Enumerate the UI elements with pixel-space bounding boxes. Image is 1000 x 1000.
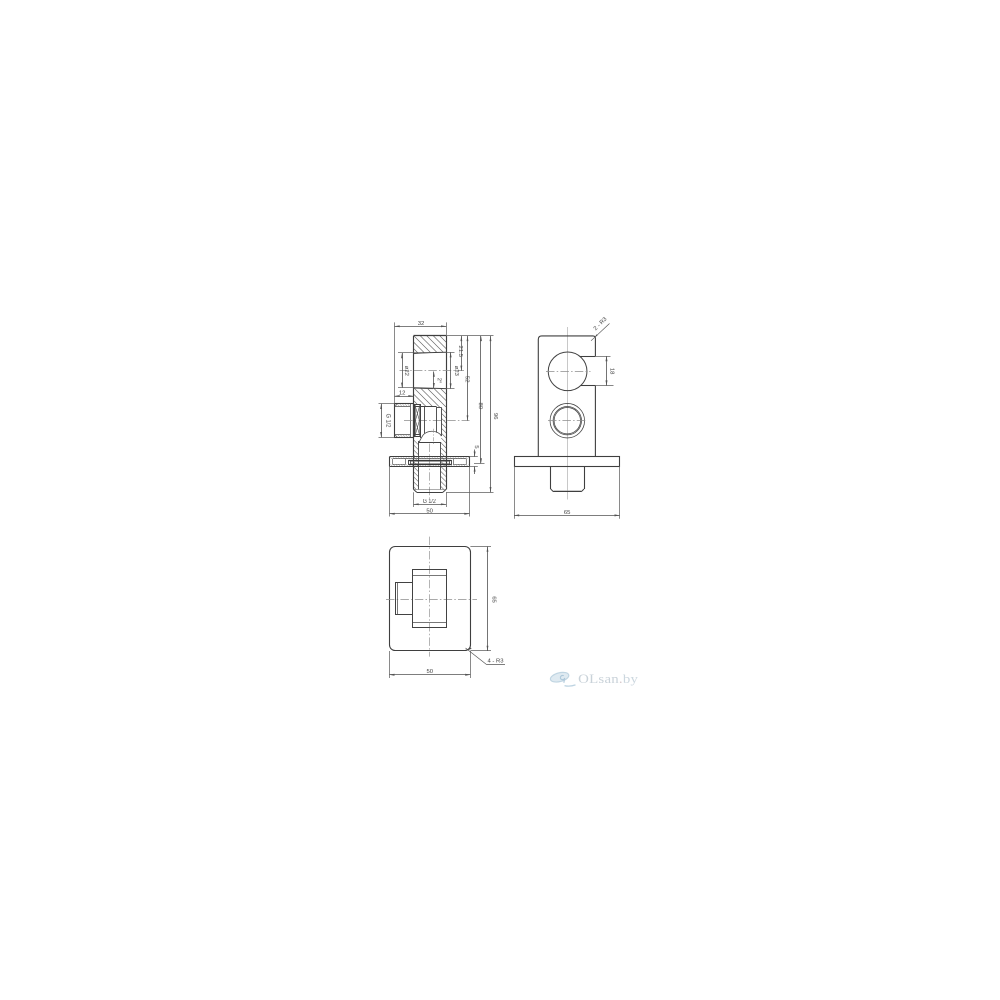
svg-text:80: 80: [477, 403, 483, 410]
svg-text:18: 18: [608, 368, 614, 375]
svg-text:OLsan.by: OLsan.by: [578, 671, 638, 686]
svg-text:21.5: 21.5: [457, 346, 463, 358]
svg-text:G 1/2: G 1/2: [384, 414, 390, 428]
svg-text:50: 50: [426, 508, 433, 514]
svg-text:ø23: ø23: [453, 366, 459, 377]
svg-text:4 - R3: 4 - R3: [487, 659, 504, 665]
svg-text:2°: 2°: [436, 378, 442, 384]
svg-text:50: 50: [427, 669, 434, 675]
svg-text:12: 12: [399, 390, 406, 396]
svg-text:52: 52: [463, 376, 469, 383]
svg-text:ø22: ø22: [403, 366, 409, 376]
svg-text:65: 65: [490, 596, 496, 603]
svg-text:96: 96: [492, 413, 498, 420]
svg-text:32: 32: [418, 321, 425, 327]
svg-text:G 1/2: G 1/2: [423, 499, 437, 505]
svg-text:65: 65: [564, 510, 571, 516]
